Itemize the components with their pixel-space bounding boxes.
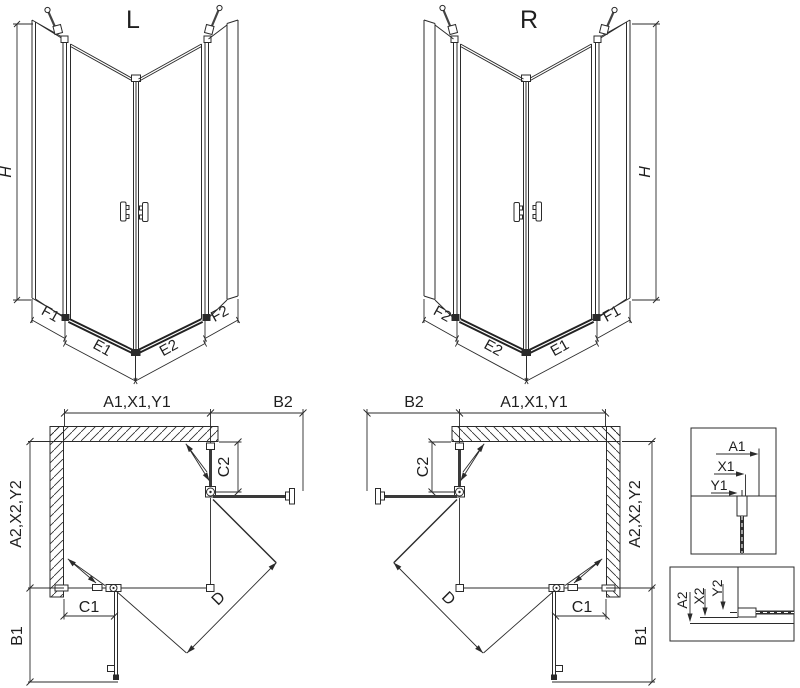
dim-label-y1-detail: Y1 (710, 477, 727, 493)
dim-label-b1-planright: B1 (633, 626, 650, 646)
plan-left-view (27, 409, 307, 686)
dim-label-a2-detail: A2 (674, 591, 690, 608)
dim-label-a1x1y1-planright: A1,X1,Y1 (500, 394, 568, 411)
dim-label-d-planright: D (438, 589, 458, 609)
dim-label-b2-planright: B2 (404, 394, 424, 411)
variant-label-r: R (520, 6, 538, 34)
dim-label-y2-detail: Y2 (709, 579, 725, 596)
dim-label-h-left: H (0, 166, 15, 178)
dim-label-c2-planright: C2 (415, 457, 432, 478)
r3d-view (422, 5, 660, 384)
dim-label-a1x1y1-planleft: A1,X1,Y1 (103, 394, 171, 411)
dim-label-a2x2y2-planright: A2,X2,Y2 (627, 480, 644, 548)
plan-right-view (364, 409, 656, 686)
dim-label-c2-planleft: C2 (216, 457, 233, 478)
labels: L H F1 E1 E2 F2 R H F2 E2 E1 F1 A1,X1,Y1… (0, 6, 746, 646)
dim-label-c1-planleft: C1 (79, 599, 100, 616)
dim-label-a2x2y2-planleft: A2,X2,Y2 (8, 480, 25, 548)
dim-label-b1-planleft: B1 (9, 626, 26, 646)
dim-label-f1-right: F1 (600, 302, 624, 325)
diagram-canvas: L H F1 E1 E2 F2 R H F2 E2 E1 F1 A1,X1,Y1… (0, 0, 800, 688)
dim-label-b2-planleft: B2 (273, 394, 293, 411)
dim-label-h-right: H (637, 166, 654, 178)
dim-label-f2-left: F2 (208, 302, 232, 325)
dim-label-f1-left: F1 (38, 302, 62, 325)
dim-label-c1-planright: C1 (572, 599, 593, 616)
shower-enclosure-technical-diagram: L H F1 E1 E2 F2 R H F2 E2 E1 F1 A1,X1,Y1… (0, 0, 800, 688)
dim-label-f2-right: F2 (430, 302, 454, 325)
dim-label-x2-detail: X2 (691, 587, 707, 604)
l3d-view (13, 5, 240, 384)
dim-label-a1-detail: A1 (728, 438, 745, 454)
dim-label-x1-detail: X1 (717, 458, 734, 474)
variant-label-l: L (126, 6, 140, 34)
